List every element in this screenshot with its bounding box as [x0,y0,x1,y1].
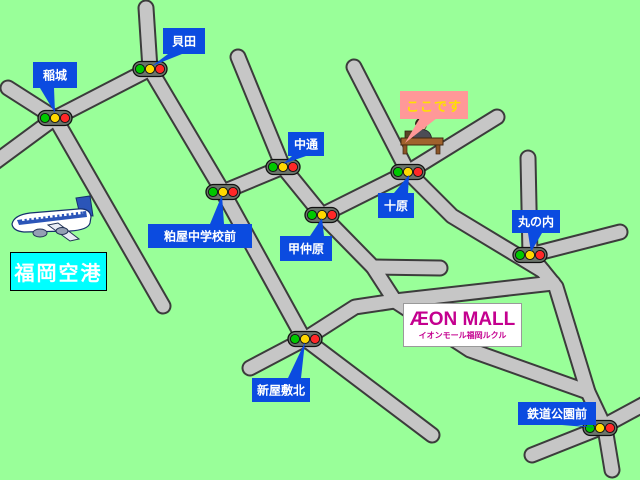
road-3 [146,8,150,69]
aeon-mall-subtitle: イオンモール福岡ルクル [419,332,507,340]
traffic-light-inagi [38,111,72,126]
traffic-light-lamp-red [155,64,164,73]
airplane-engine-rear [56,228,68,235]
traffic-light-lamp-red [535,250,544,259]
label-text: 粕屋中学校前 [164,229,236,244]
desk-leg-left [403,145,407,154]
label-text: 貝田 [172,35,196,49]
label-text: 甲仲原 [288,241,324,256]
aeon-mall-logo-text: ÆON MALL [410,310,516,329]
traffic-light-lamp-yellow [300,334,309,343]
label-text: 新屋敷北 [257,383,305,398]
traffic-light-lamp-green [515,250,524,259]
label-text: 稲城 [43,68,67,83]
here-bubble: ここです [400,91,468,119]
traffic-light-lamp-green [208,187,217,196]
traffic-light-lamp-yellow [403,167,412,176]
aeon-mall-sign: ÆON MALL イオンモール福岡ルクル [403,303,522,347]
traffic-light-kaida [133,62,167,77]
traffic-light-lamp-red [310,334,319,343]
traffic-light-lamp-yellow [218,187,227,196]
traffic-light-lamp-red [327,210,336,219]
desk-leg-right [436,145,440,154]
desk-top [401,138,443,145]
traffic-light-marunouchi [513,248,547,263]
label-text: 中通 [294,137,318,152]
traffic-light-lamp-green [393,167,402,176]
traffic-light-lamp-green [290,334,299,343]
traffic-light-lamp-green [268,162,277,171]
traffic-light-lamp-green [40,113,49,122]
traffic-light-lamp-green [135,64,144,73]
traffic-light-lamp-yellow [525,250,534,259]
label-text: 丸の内 [517,214,554,229]
traffic-light-kasuya-chugakko-mae [206,185,240,200]
traffic-light-nakadori [266,160,300,175]
label-text: 十原 [384,198,408,213]
map-canvas: 稲城貝田中通十原丸の内甲仲原粕屋中学校前新屋敷北鉄道公園前 [0,0,640,480]
traffic-light-lamp-red [60,113,69,122]
traffic-light-shin-yashiki-kita [288,332,322,347]
traffic-light-lamp-yellow [145,64,154,73]
traffic-light-lamp-green [307,210,316,219]
label-text: 鉄道公園前 [527,406,587,421]
traffic-light-lamp-red [288,162,297,171]
map-label-tetsudo-koen-mae: 鉄道公園前 [518,402,598,428]
traffic-light-lamp-yellow [50,113,59,122]
road-20 [373,267,440,268]
traffic-light-lamp-yellow [278,162,287,171]
airplane-engine-front [33,229,47,237]
route-map: 稲城貝田中通十原丸の内甲仲原粕屋中学校前新屋敷北鉄道公園前 福岡空港 ここです … [0,0,640,480]
traffic-light-lamp-red [413,167,422,176]
traffic-light-lamp-yellow [595,423,604,432]
traffic-light-lamp-red [605,423,614,432]
traffic-light-lamp-red [228,187,237,196]
fukuoka-airport-label: 福岡空港 [10,252,107,291]
